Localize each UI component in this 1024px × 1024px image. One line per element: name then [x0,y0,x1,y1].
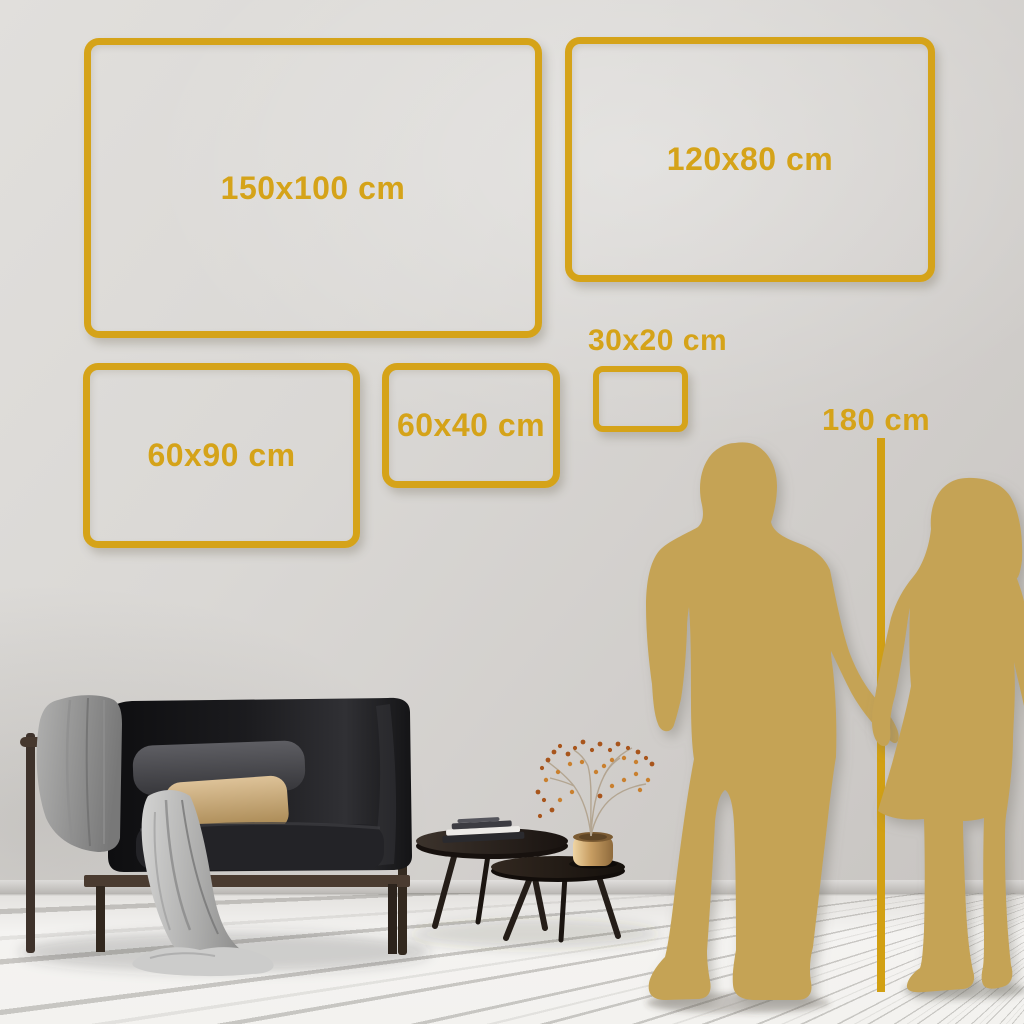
size-guide-scene: 150x100 cm 120x80 cm 60x90 cm 60x40 cm 3… [0,0,1024,1024]
size-frame-60x40: 60x40 cm [382,363,560,488]
size-frame-60x90: 60x90 cm [83,363,360,548]
plant-illustration [548,748,646,836]
coffee-tables-illustration [416,740,654,940]
books-illustration [441,816,524,843]
size-frame-150x100: 150x100 cm [84,38,542,338]
brass-pot-illustration [573,832,613,866]
size-label-120x80: 120x80 cm [667,141,833,178]
size-label-150x100: 150x100 cm [221,170,406,207]
size-frame-30x20 [593,366,688,432]
man-silhouette [646,442,899,1000]
size-label-60x90: 60x90 cm [147,437,295,474]
height-reference-label: 180 cm [822,402,930,438]
size-label-60x40: 60x40 cm [397,407,545,444]
size-label-30x20: 30x20 cm [588,324,727,358]
size-frame-120x80: 120x80 cm [565,37,935,282]
